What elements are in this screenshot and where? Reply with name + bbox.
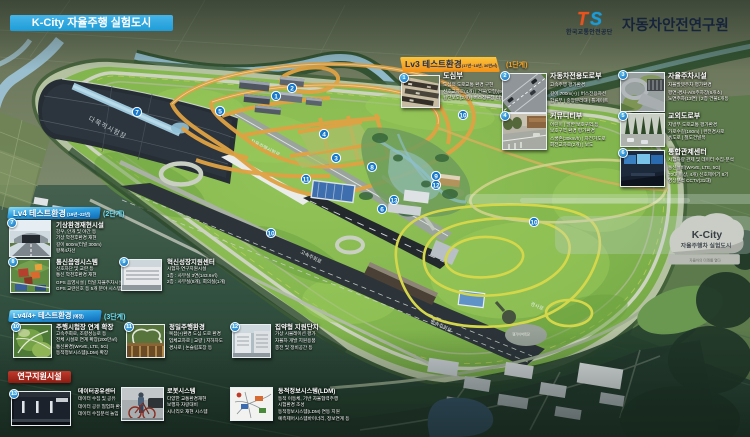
svg-text:12: 12: [432, 182, 440, 189]
svg-text:K-City: K-City: [692, 230, 723, 241]
svg-text:2: 2: [290, 85, 294, 92]
svg-text:10: 10: [530, 219, 538, 226]
svg-text:3: 3: [334, 155, 338, 162]
svg-text:6: 6: [380, 206, 384, 213]
svg-text:8: 8: [370, 164, 374, 171]
svg-text:11: 11: [303, 176, 310, 183]
svg-text:1: 1: [274, 93, 278, 100]
svg-text:5: 5: [218, 108, 222, 115]
svg-text:9: 9: [434, 173, 438, 180]
svg-text:7: 7: [135, 109, 139, 116]
svg-text:10: 10: [459, 112, 467, 119]
svg-text:4: 4: [322, 131, 326, 138]
svg-text:자율주행차 실험도시: 자율주행차 실험도시: [681, 242, 732, 250]
svg-text:13: 13: [390, 197, 398, 204]
svg-text:자율차의 미래를 열다: 자율차의 미래를 열다: [689, 258, 721, 263]
svg-text:10: 10: [267, 230, 275, 237]
